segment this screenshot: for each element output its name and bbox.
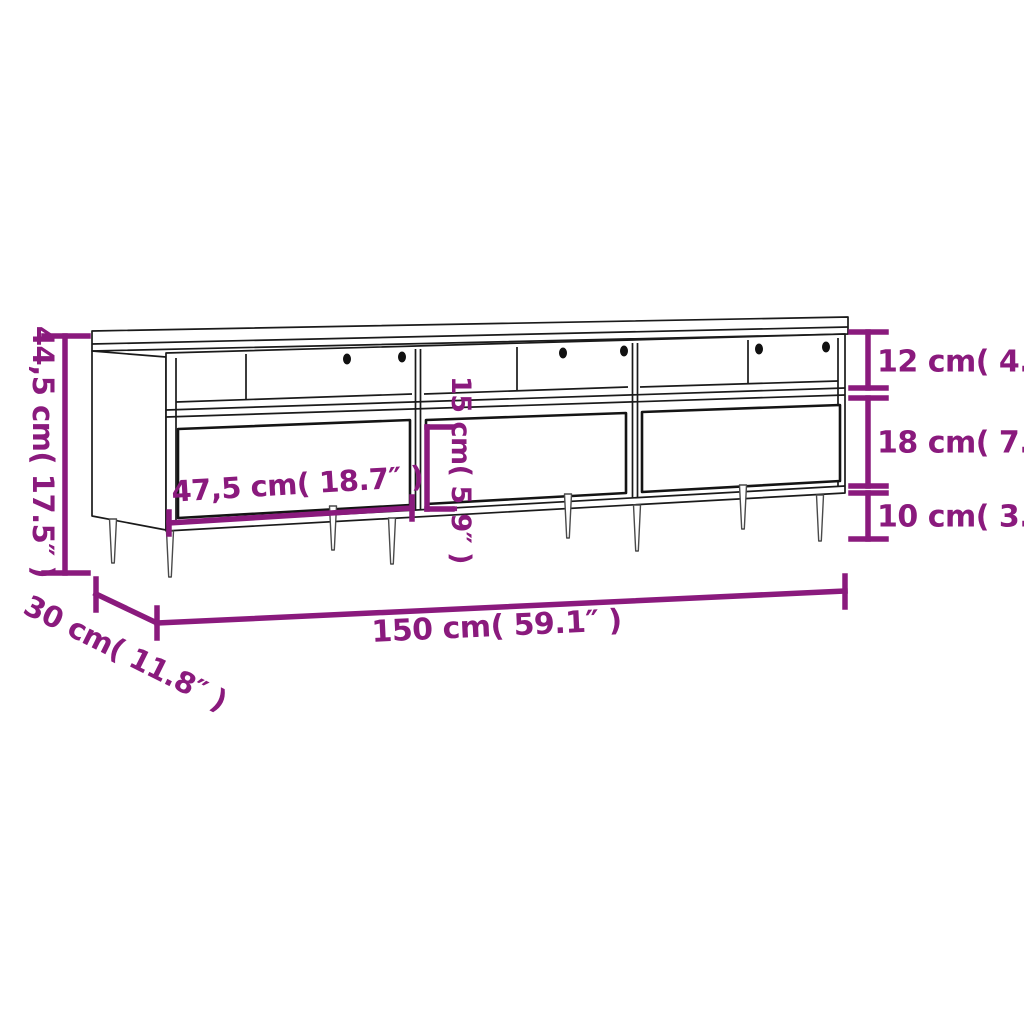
leg-height-label: 10 cm( 3.9″ ) <box>877 500 1024 535</box>
compartment-height-label: 12 cm( 4.7″ ) <box>877 345 1024 380</box>
dimension-compartment-height: 12 cm( 4.7″ ) <box>851 332 1024 388</box>
leg-front-4 <box>817 495 824 541</box>
cabinet-left-side-panel <box>92 351 166 530</box>
diagram-svg: 44,5 cm( 17.5″ ) 12 cm( 4.7″ ) 18 cm( 7.… <box>0 0 1024 1024</box>
drawer-section-height-label: 18 cm( 7.1″ ) <box>877 426 1024 461</box>
dimension-diagram: 44,5 cm( 17.5″ ) 12 cm( 4.7″ ) 18 cm( 7.… <box>0 0 1024 1024</box>
dimension-drawer-section-height: 18 cm( 7.1″ ) <box>851 398 1024 486</box>
leg-back-3 <box>565 494 572 538</box>
dimension-leg-height: 10 cm( 3.9″ ) <box>851 493 1024 539</box>
leg-front-3 <box>634 505 641 551</box>
leg-front-1 <box>167 531 174 577</box>
dimension-overall-height: 44,5 cm( 17.5″ ) <box>26 326 88 578</box>
overall-height-label: 44,5 cm( 17.5″ ) <box>26 326 60 578</box>
drawer-front-height-label: 15 cm( 5.9″ ) <box>445 376 476 564</box>
dimension-overall-depth: 30 cm( 11.8″ ) <box>19 579 233 718</box>
leg-back-4 <box>740 485 747 529</box>
leg-front-2 <box>389 518 396 564</box>
leg-back-1 <box>110 519 117 563</box>
dimension-overall-width: 150 cm( 59.1″ ) <box>157 576 845 650</box>
drawer-front-right <box>642 405 840 492</box>
